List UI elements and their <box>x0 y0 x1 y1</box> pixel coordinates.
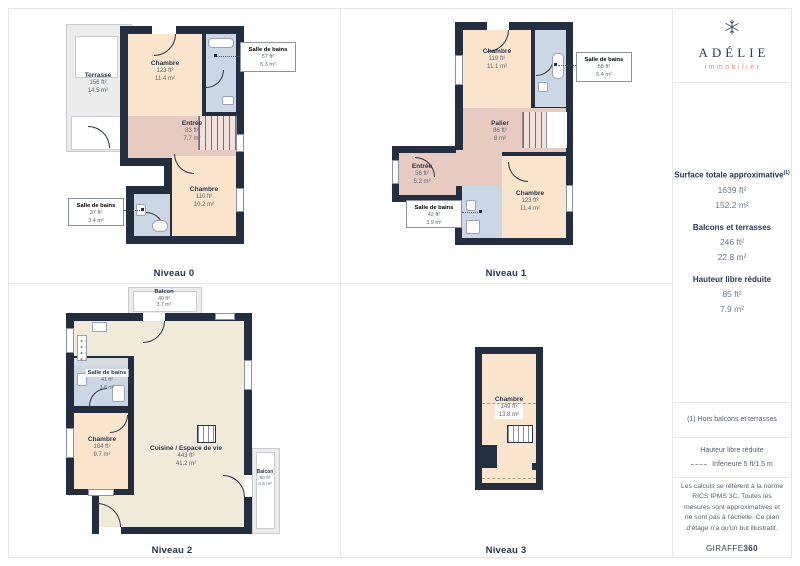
leader-line <box>217 56 240 57</box>
callout-salle-de-bains-2: Salle de bains 37 ft² 3.4 m² <box>68 198 124 226</box>
room-label-chambre-1: Chambre 123 ft² 11.4 m² <box>151 60 179 83</box>
wall-segment <box>475 445 497 468</box>
leader-line <box>462 212 480 213</box>
door-opening <box>244 475 252 497</box>
bathtub-fixture <box>552 53 564 79</box>
metrics-block: Surface totale approximative(1) 1639 ft²… <box>672 82 792 402</box>
window <box>66 328 74 353</box>
window <box>88 489 114 496</box>
toilet-fixture <box>466 200 476 211</box>
footnote-text: (1) Hors balcons et terrasses <box>687 416 777 423</box>
brand-tagline: immobilier <box>703 64 762 71</box>
callout-salle-de-bains-1: Salle de bains 58 ft² 5.4 m² <box>576 52 632 82</box>
legend-row: Inférieure 5 ft/1.5 m <box>691 461 773 468</box>
stairwell-void <box>546 112 567 148</box>
footnote-block: (1) Hors balcons et terrasses <box>672 402 792 437</box>
staircase <box>197 425 216 443</box>
wall-segment <box>532 463 543 470</box>
surface-total-m: 152.2 m² <box>715 200 749 210</box>
legend-block: Hauteur libre réduite Inférieure 5 ft/1.… <box>672 437 792 477</box>
room-cuisine-espace-de-vie <box>99 495 244 527</box>
balcon-inner <box>256 452 275 529</box>
door-opening <box>487 22 509 30</box>
room-label-chambre: Chambre 149 ft² 13.8 m² <box>495 396 523 419</box>
callout-salle-de-bains-1: Salle de bains 57 ft² 5.3 m² <box>240 42 296 72</box>
room-label-entree: Entrée 56 ft² 5.2 m² <box>412 163 432 186</box>
window <box>215 313 235 320</box>
room-label-salle-de-bains: Salle de bains 41 ft² 3.8 m² <box>86 369 129 392</box>
brand-name: ADÉLIE <box>695 45 770 61</box>
shower-fixture <box>466 220 480 234</box>
room-label-balcon-1: Balcon 40 ft² 3.7 m² <box>154 289 173 309</box>
toilet-fixture <box>538 82 548 92</box>
reduced-height-title: Hauteur libre réduite <box>693 275 771 284</box>
reduced-height-m: 7.9 m² <box>720 304 744 314</box>
brand-block: ADÉLIE immobilier <box>672 8 792 82</box>
bathtub-fixture <box>208 38 234 48</box>
bathtub-fixture <box>152 220 168 232</box>
leader-dot <box>554 63 557 66</box>
room-label-chambre-2: Chambre 110 ft² 10.2 m² <box>190 186 218 209</box>
door-opening <box>99 527 121 534</box>
window <box>455 55 463 85</box>
room-label-palier: Palier 86 ft² 8 m² <box>491 120 509 143</box>
surface-total-title: Surface totale approximative(1) <box>674 170 790 180</box>
window <box>66 428 74 458</box>
reduced-height-ft: 85 ft² <box>722 289 741 299</box>
room-label-terrasse: Terrasse 156 ft² 14.5 m² <box>85 72 112 95</box>
level-0-plan: Terrasse 156 ft² 14.5 m² Chambre 123 ft²… <box>8 8 340 283</box>
level-2-plan: Balcon 40 ft² 3.7 m² Salle de bains 41 f… <box>8 283 340 558</box>
door-opening <box>152 26 176 34</box>
staircase <box>198 116 237 150</box>
balconies-ft: 246 ft² <box>720 237 744 247</box>
room-label-chambre: Chambre 104 ft² 9.7 m² <box>88 436 116 459</box>
room-label-entree: Entrée 83 ft² 7.7 m² <box>182 120 202 143</box>
room-label-chambre-2: Chambre 123 ft² 11.4 m² <box>516 190 544 213</box>
leader-dot <box>214 54 217 57</box>
window <box>392 160 399 184</box>
leader-dot <box>141 208 144 211</box>
window <box>236 134 244 152</box>
toilet-fixture <box>222 96 234 105</box>
leader-dot <box>479 210 482 213</box>
level-1-title: Niveau 1 <box>486 268 527 279</box>
balconies-title: Balcons et terrasses <box>693 223 771 232</box>
hallway <box>456 150 502 186</box>
room-label-balcon-2: Balcon 50 ft² 4.6 m² <box>257 469 274 488</box>
level-3-title: Niveau 3 <box>486 545 527 556</box>
callout-salle-de-bains-2: Salle de bains 42 ft² 3.9 m² <box>406 200 462 228</box>
window <box>566 185 573 212</box>
legend-title: Hauteur libre réduite <box>700 447 763 454</box>
door-opening <box>143 313 165 321</box>
level-3-plan: Chambre 149 ft² 13.8 m² Niveau 3 <box>340 283 672 558</box>
legal-text: Les calculs se réfèrent à la norme RICS … <box>672 482 792 535</box>
snowflake-icon <box>724 19 740 40</box>
dashed-line-icon <box>691 464 707 465</box>
level-2-title: Niveau 2 <box>152 545 193 556</box>
leader-line <box>558 65 576 66</box>
surface-total-ft: 1639 ft² <box>718 185 747 195</box>
room-label-chambre-1: Chambre 119 ft² 11.1 m² <box>483 48 511 71</box>
staircase <box>507 425 533 443</box>
giraffe360-credit: GIRAFFE360 <box>706 544 758 553</box>
legal-block: Les calculs se réfèrent à la norme RICS … <box>672 477 792 558</box>
window <box>244 360 252 390</box>
staircase <box>522 112 547 148</box>
leader-line <box>124 210 142 211</box>
level-1-plan: Chambre 119 ft² 11.1 m² Palier 86 ft² 8 … <box>340 8 672 283</box>
floorplan-sheet: Terrasse 156 ft² 14.5 m² Chambre 123 ft²… <box>0 0 800 566</box>
reduced-height-line <box>482 478 536 479</box>
level-0-title: Niveau 0 <box>154 268 195 279</box>
balconies-m: 22.8 m² <box>718 252 747 262</box>
window <box>236 188 244 212</box>
legend-label: Inférieure 5 ft/1.5 m <box>712 461 773 468</box>
stove-icon <box>77 335 87 361</box>
sink-fixture <box>92 322 107 332</box>
room-label-cuisine: Cuisine / Espace de vie 443 ft² 41.2 m² <box>150 445 222 468</box>
